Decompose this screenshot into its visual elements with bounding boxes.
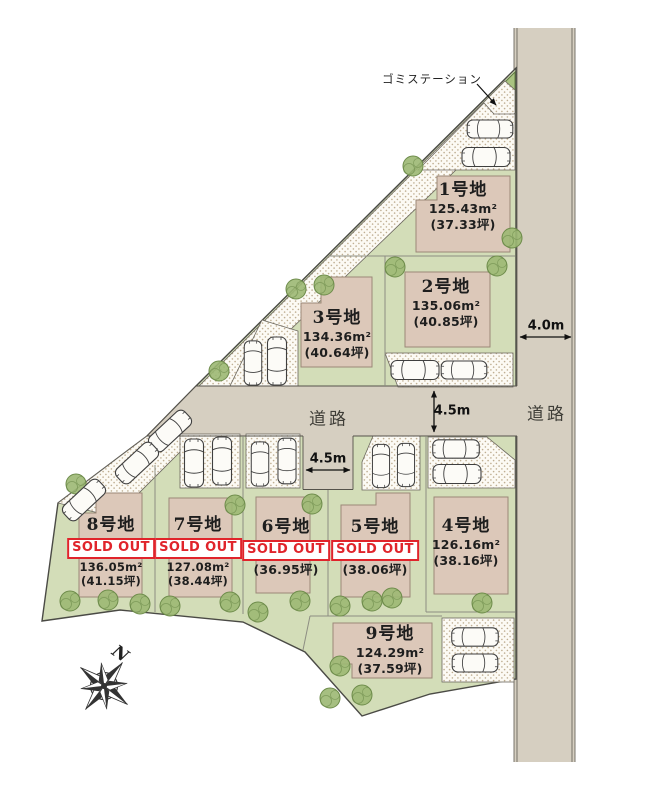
lot-5-name: 5号地: [331, 517, 419, 538]
road-vertical: [514, 28, 575, 762]
lot-2-area-m2: 135.06m²: [412, 298, 480, 314]
lot-8-area-m2: 136.05m²: [67, 560, 155, 574]
lot-4-name: 4号地: [432, 516, 500, 537]
lot-7-name: 7号地: [154, 515, 242, 536]
lot-7-area-m2: 127.08m²: [154, 560, 242, 574]
lot-2-area-tsubo: (40.85坪): [412, 314, 480, 330]
dimension-right-road: 4.0m: [528, 319, 565, 334]
lot-9-area-m2: 124.29m²: [356, 645, 424, 661]
dimension-stub-road: 4.5m: [310, 452, 347, 467]
lot-4-area-tsubo: (38.16坪): [432, 553, 500, 569]
lot-3-name: 3号地: [303, 308, 371, 329]
lot-5-sold-out-badge: SOLD OUT: [331, 540, 419, 560]
lot-9-name: 9号地: [356, 624, 424, 645]
lot-9-area-tsubo: (37.59坪): [356, 661, 424, 677]
lot-7-label: 7号地 SOLD OUT 127.08m² (38.44坪): [154, 515, 242, 588]
road-label-horizontal: 道路: [309, 405, 349, 430]
lot-8-name: 8号地: [67, 515, 155, 536]
road-label-vertical: 道路: [527, 400, 567, 425]
lot-3-area-tsubo: (40.64坪): [303, 345, 371, 361]
compass-icon: [62, 644, 146, 728]
lot-2-name: 2号地: [412, 277, 480, 298]
lot-3-area-m2: 134.36m²: [303, 329, 371, 345]
dimension-main-road: 4.5m: [434, 404, 471, 419]
lot-4-label: 4号地 126.16m² (38.16坪): [432, 516, 500, 569]
lot-map-canvas: ゴミステーション 道路 道路 4.0m 4.5m 4.5m N 1号地 125.…: [0, 0, 645, 800]
lot-1-label: 1号地 125.43m² (37.33坪): [429, 180, 497, 233]
lot-6-sold-out-badge: SOLD OUT: [242, 540, 330, 560]
lot-1-area-tsubo: (37.33坪): [429, 217, 497, 233]
lot-1-name: 1号地: [429, 180, 497, 201]
lot-5-label: 5号地 SOLD OUT (38.06坪): [331, 517, 419, 577]
lot-8-sold-out-badge: SOLD OUT: [67, 538, 155, 558]
lot-5-area-tsubo: (38.06坪): [331, 562, 419, 578]
lot-6-area-tsubo: (36.95坪): [242, 562, 330, 578]
lot-8-label: 8号地 SOLD OUT 136.05m² (41.15坪): [67, 515, 155, 588]
lot-7-sold-out-badge: SOLD OUT: [154, 538, 242, 558]
lot-8-area-tsubo: (41.15坪): [67, 574, 155, 588]
lot-3-label: 3号地 134.36m² (40.64坪): [303, 308, 371, 361]
lot-2-label: 2号地 135.06m² (40.85坪): [412, 277, 480, 330]
lot-6-name: 6号地: [242, 517, 330, 538]
lot-6-label: 6号地 SOLD OUT (36.95坪): [242, 517, 330, 577]
lot-7-area-tsubo: (38.44坪): [154, 574, 242, 588]
lot-4-area-m2: 126.16m²: [432, 537, 500, 553]
lot-9-label: 9号地 124.29m² (37.59坪): [356, 624, 424, 677]
lot-1-area-m2: 125.43m²: [429, 201, 497, 217]
garbage-station-label: ゴミステーション: [382, 71, 482, 87]
